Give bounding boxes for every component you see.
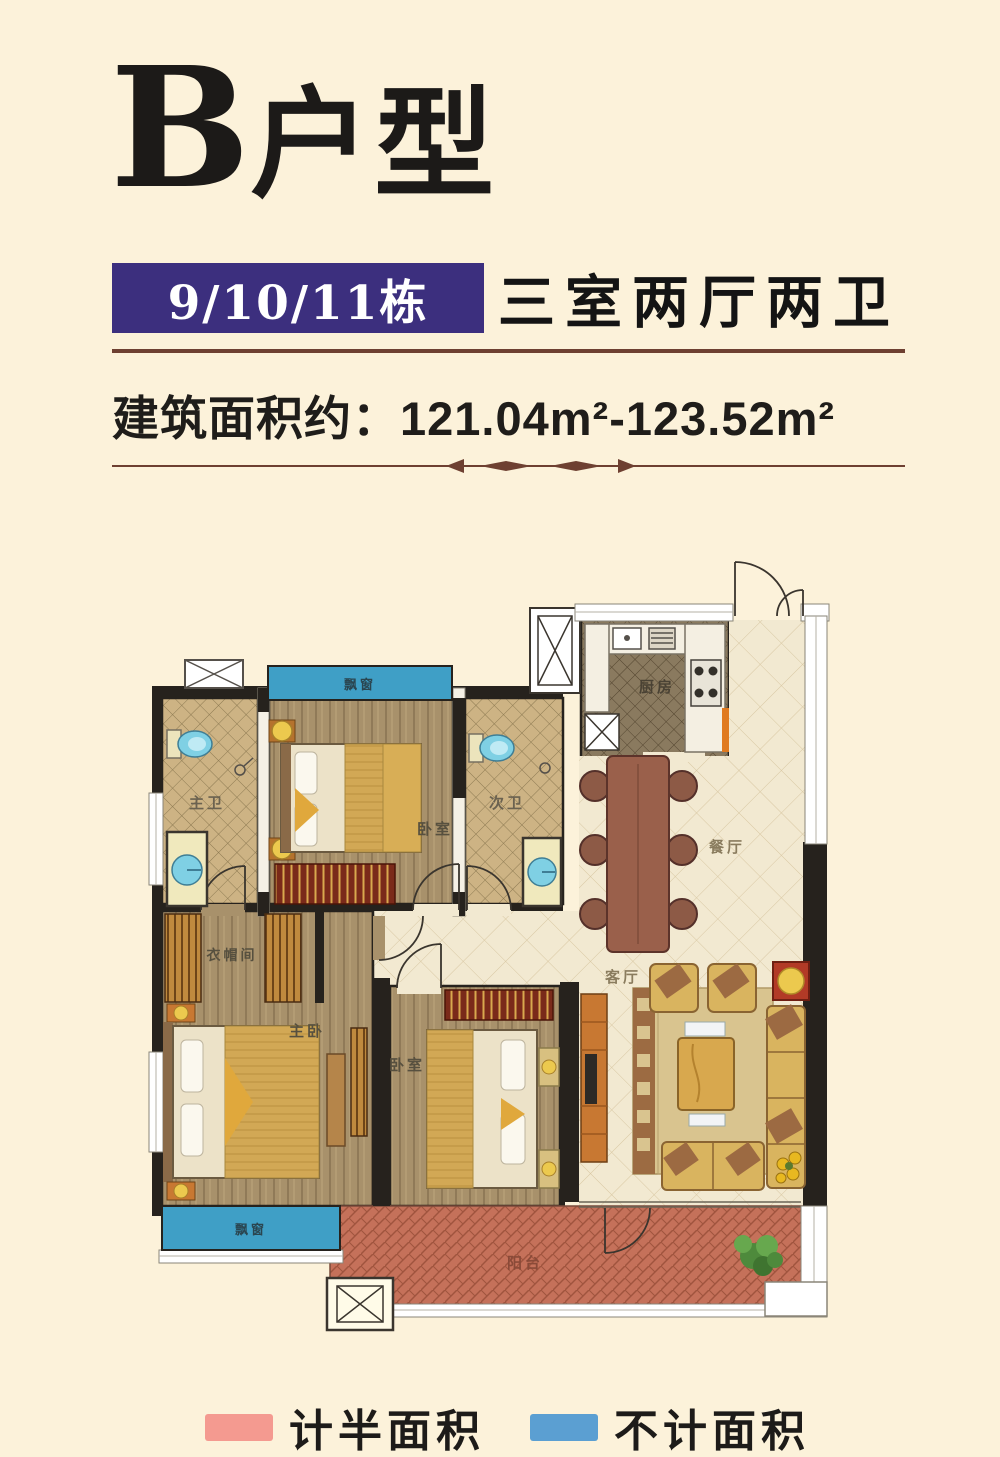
dining-set [580,756,697,952]
excluded-area-swatch-icon [530,1414,598,1441]
lamp-icon [778,968,804,994]
area-text: 建筑面积约：121.04m²-123.52m² [112,380,835,449]
lamp-icon [542,1162,556,1176]
right-arrow-icon [618,459,636,473]
room-label-closet: 衣帽间 [207,947,258,963]
flue-box-icon [327,1278,393,1330]
wardrobe [445,990,553,1020]
lamp-icon [174,1006,188,1020]
room-label-bay-top: 飘窗 [344,677,376,692]
legend-item-half-area: 计半面积 [205,1402,485,1452]
room-label-bedroom-bottom: 卧室 [389,1056,425,1074]
entry-door-arc-small [777,590,803,616]
building-badge-label: 9/10/11栋 [168,264,429,333]
dresser [275,864,395,904]
stove-icon [691,660,721,706]
entry-corridor [729,620,811,760]
lamp-icon [174,1184,188,1198]
legend-label-excluded-area: 不计面积 [614,1395,810,1457]
lamp-icon [272,721,292,741]
wardrobe [165,914,201,1002]
room-label-living: 客厅 [604,968,641,986]
room-label-bedroom-top: 卧室 [417,820,453,838]
tv-icon [585,1054,597,1104]
room-label-master-bedroom: 主卧 [289,1022,325,1040]
coffee-table [678,1038,734,1110]
wardrobe [265,914,301,1002]
divider-line [112,349,905,353]
bench [327,1054,345,1146]
dresser [351,1028,367,1136]
layout-summary: 三室两厅两卫 [498,263,900,333]
flyer-page: B户型 9/10/11栋 三室两厅两卫 建筑面积约：121.04m²-123.5… [0,0,1000,1457]
room-label-master-bath: 主卫 [189,794,225,812]
legend-label-half-area: 计半面积 [289,1395,485,1457]
title-letter: B [110,31,250,226]
floorplan: 飘窗 主卫 卧室 次卫 厨房 餐厅 客厅 衣帽间 主卧 卧室 飘窗 阳台 [145,558,895,1348]
half-area-swatch-icon [205,1414,273,1441]
title-suffix: 户型 [250,74,498,215]
ac-platform-icon [185,660,243,688]
room-label-dining: 餐厅 [709,838,745,856]
diamond-icon [480,461,532,471]
decorative-divider [112,456,905,476]
room-label-second-bath: 次卫 [489,794,525,812]
lamp-icon [542,1060,556,1074]
page-title: B户型 [110,46,498,221]
entry-door-arc [735,562,789,616]
legend-item-excluded-area: 不计面积 [530,1402,810,1452]
room-label-bay-bottom: 飘窗 [235,1222,267,1237]
room-label-balcony: 阳台 [507,1254,543,1272]
elevator-shaft-icon [530,608,580,693]
diamond-icon [550,461,602,471]
room-label-kitchen: 厨房 [639,678,675,696]
building-badge: 9/10/11栋 [112,263,484,333]
hallway [373,911,581,987]
left-arrow-icon [446,459,464,473]
